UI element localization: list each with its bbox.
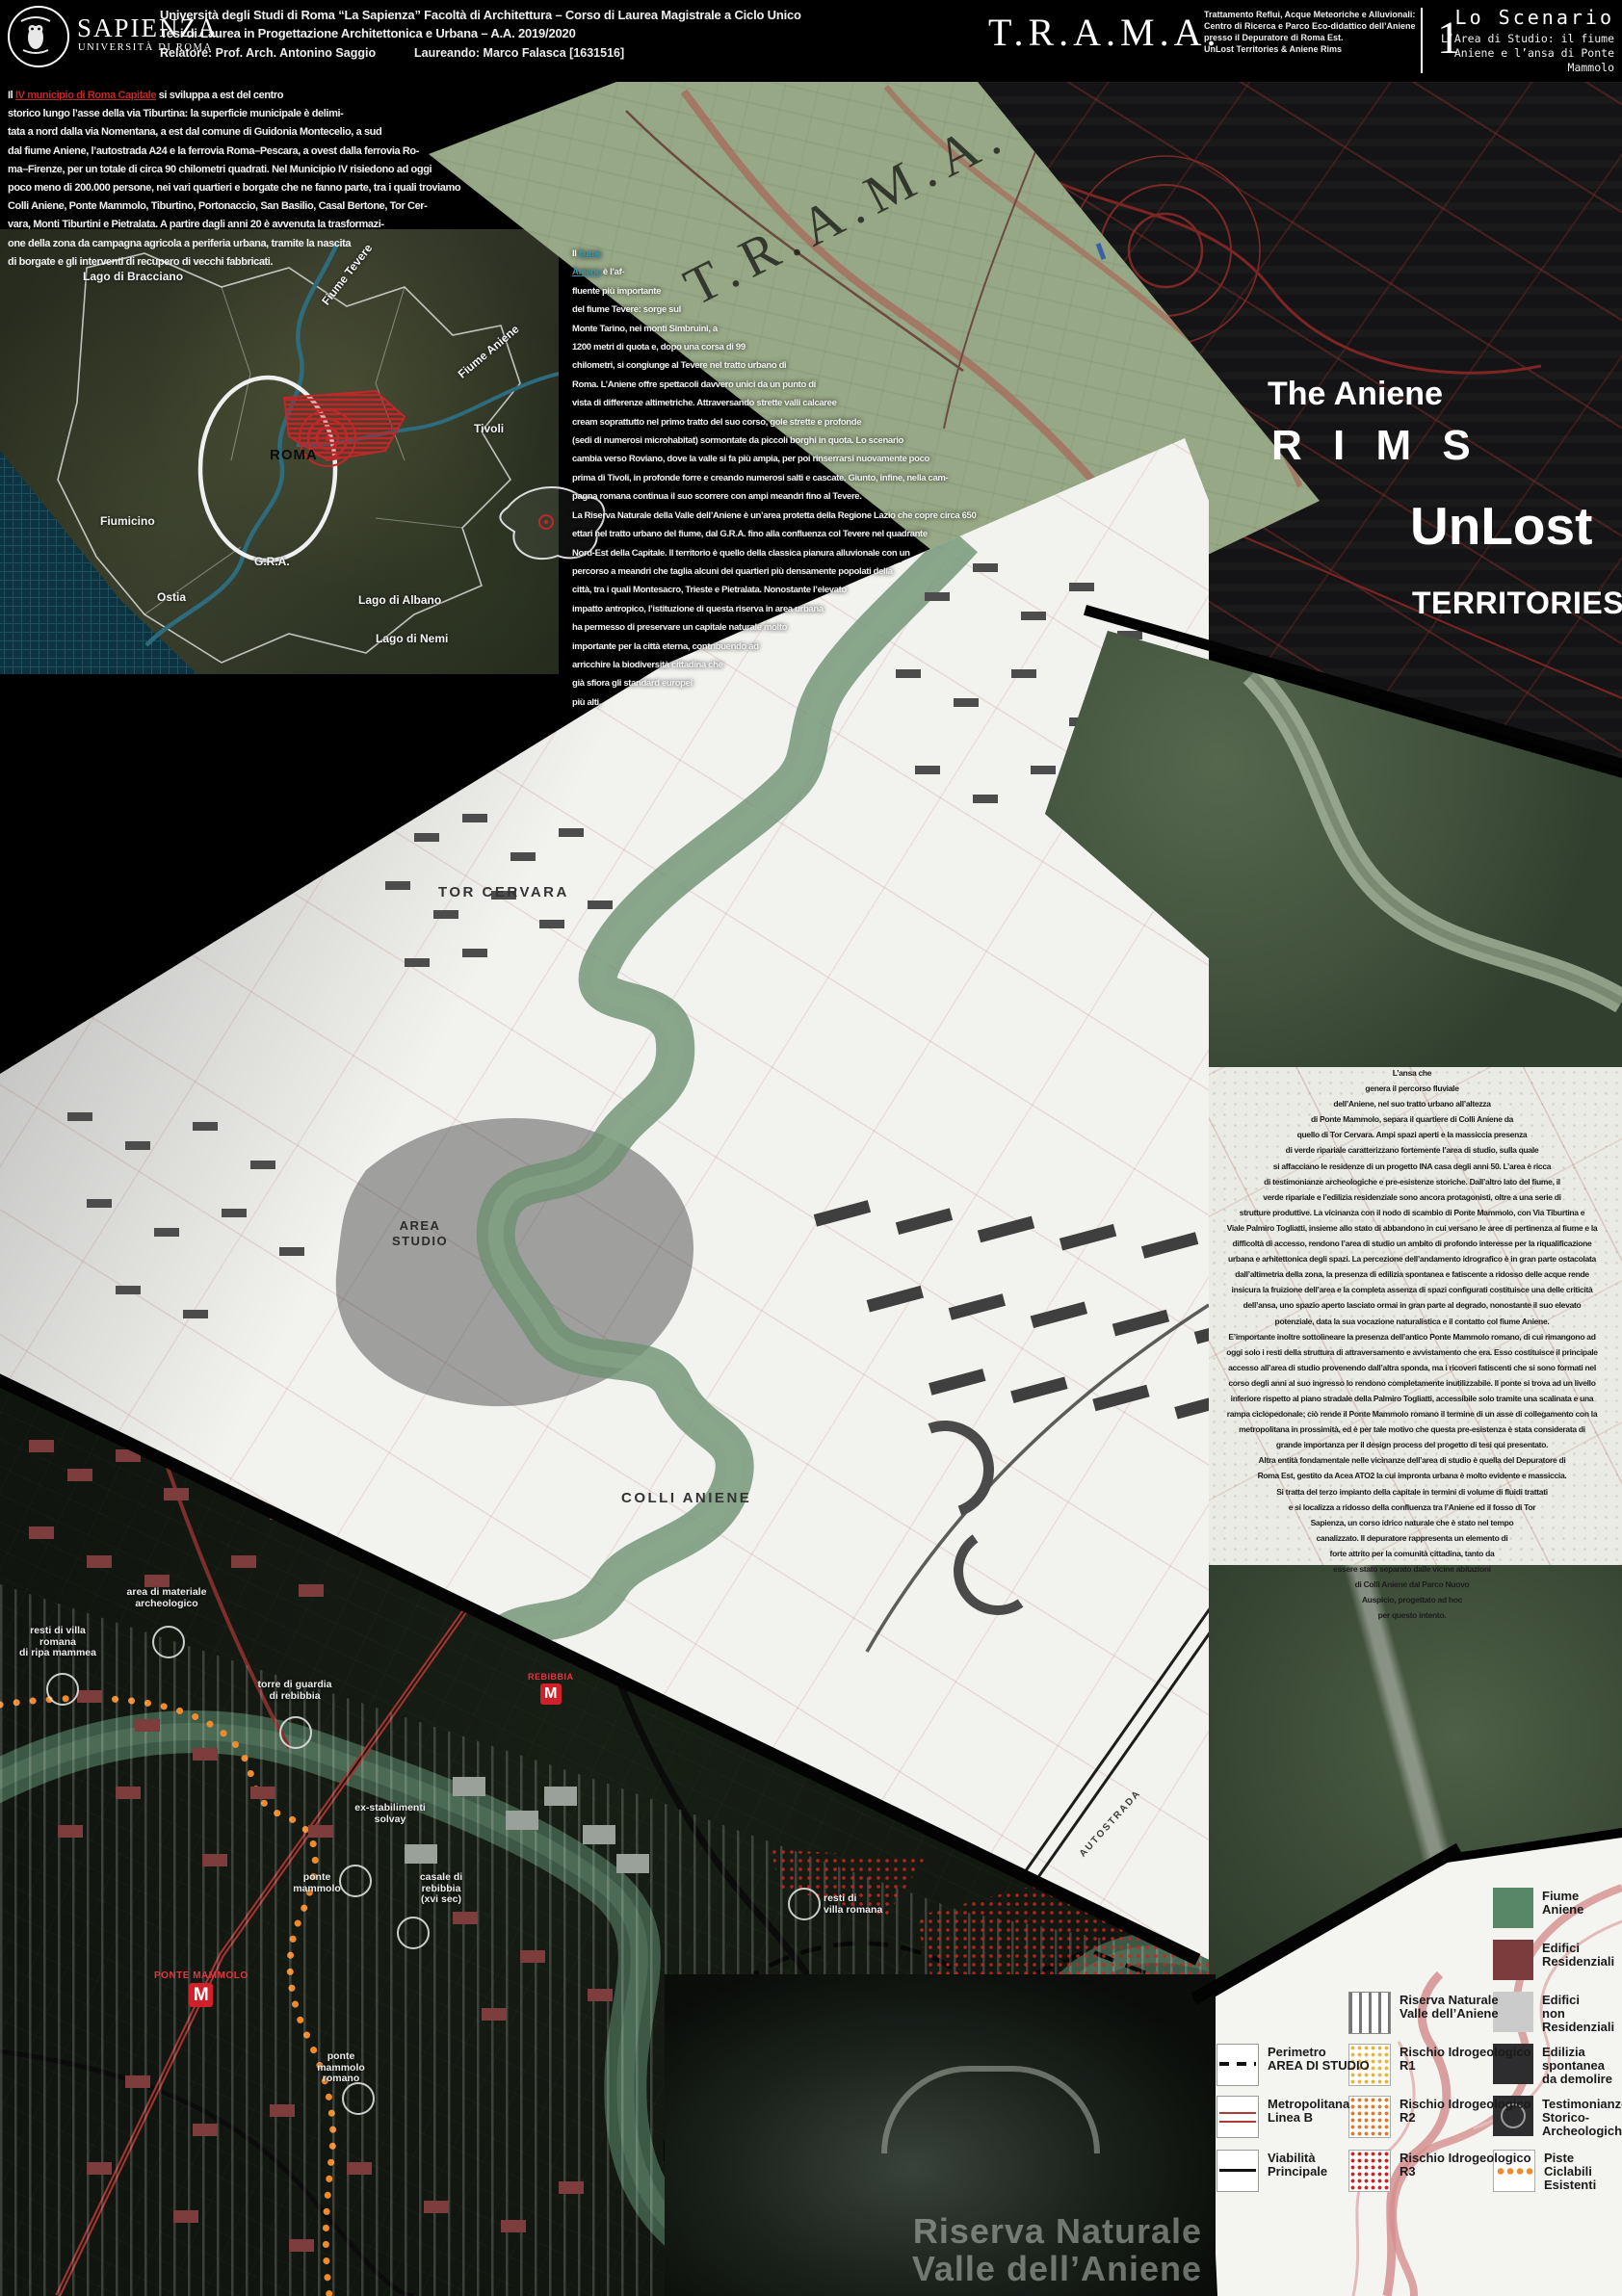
- ansa-paragraph: L’ansa che genera il percorso fluviale d…: [1202, 1065, 1622, 1623]
- metro-station-rebibbia: REBIBBIA M: [528, 1672, 574, 1705]
- scenario-subtitle: L’Area di Studio: il fiume Aniene e l’an…: [1281, 32, 1614, 75]
- poi-circle: [46, 1673, 79, 1706]
- project-acronym: T.R.A.M.A.: [988, 10, 1220, 55]
- legend-item-rischio-r3: Rischio Idrogeologico R3: [1348, 2150, 1531, 2192]
- poi-ex-solvay: ex-stabilimenti solvay: [332, 1803, 448, 1825]
- metro-station-ponte-mammolo: PONTE MAMMOLO M: [154, 1970, 249, 2007]
- label-tor-cervara: TOR CERVARA: [438, 884, 569, 900]
- legend-label: Fiume Aniene: [1542, 1888, 1583, 1928]
- label-gra: G.R.A.: [254, 555, 290, 568]
- aniene-rest: è l’af- fluente più importante del fiume…: [572, 267, 976, 707]
- legend-item-rischio-r1: Rischio Idrogeologico R1: [1348, 2044, 1531, 2086]
- title-the-aniene: The Aniene: [1268, 376, 1443, 413]
- poi-circle: [788, 1888, 821, 1920]
- photo-caption: Riserva Naturale Valle dell’Aniene: [912, 2213, 1202, 2288]
- legend-item-riserva-naturale: Riserva Naturale Valle dell’Aniene: [1348, 1992, 1499, 2034]
- poi-circle: [339, 1865, 372, 1897]
- university-line2: Tesi di Laurea in Progettazione Architet…: [160, 26, 576, 40]
- swatch-bars-icon: [1348, 1992, 1391, 2034]
- legend-item-edifici-non-residenziali: Edifici non Residenziali: [1493, 1992, 1622, 2034]
- legend-item-viabilita: Viabilità Principale: [1216, 2150, 1327, 2192]
- metro-m-icon: M: [189, 1983, 213, 2007]
- label-fiumicino: Fiumicino: [100, 514, 155, 528]
- legend-item-metropolitana: Metropolitana Linea B: [1216, 2096, 1349, 2138]
- poi-resti-ripa: resti di villa romana di ripa mammea: [6, 1626, 110, 1659]
- label-lago-bracciano: Lago di Bracciano: [83, 270, 183, 283]
- swatch-dashed-line-icon: [1216, 2044, 1259, 2086]
- label-tivoli: Tivoli: [474, 422, 504, 435]
- river-photo: Riserva Naturale Valle dell’Aniene: [665, 1974, 1216, 2296]
- swatch-road-line-icon: [1216, 2150, 1259, 2192]
- intro-paragraph: Il IV municipio di Roma Capitale si svil…: [8, 87, 460, 272]
- poi-circle: [152, 1626, 185, 1658]
- legend-label: Piste Ciclabili Esistenti: [1544, 2150, 1622, 2192]
- swatch-green-icon: [1493, 1888, 1533, 1928]
- legend-label: Perimetro AREA DI STUDIO: [1268, 2044, 1370, 2086]
- title-territories: TERRITORIES: [1412, 586, 1622, 621]
- legend-label: Edifici Residenziali: [1542, 1940, 1614, 1980]
- legend-label: Riserva Naturale Valle dell’Aniene: [1400, 1992, 1499, 2034]
- label-lago-nemi: Lago di Nemi: [376, 632, 448, 645]
- intro-highlight: IV municipio di Roma Capitale: [15, 90, 156, 101]
- legend-label: Edilizia spontanea da demolire: [1542, 2044, 1622, 2086]
- poi-torre-guardia: torre di guardia di rebibbia: [241, 1680, 349, 1702]
- poi-ponte-romano: ponte mammolo romano: [301, 2051, 381, 2085]
- label-lago-albano: Lago di Albano: [358, 593, 441, 607]
- intro-rest: si sviluppa a est del centro storico lun…: [8, 90, 460, 268]
- legend-label: Testimonianze Storico- Archeologiche: [1542, 2096, 1622, 2138]
- aniene-lead: Il: [572, 248, 579, 259]
- swatch-red-dots-icon: [1348, 2150, 1391, 2192]
- laureando-credit: Laureando: Marco Falasca [1631516]: [414, 46, 624, 60]
- legend-item-rischio-r2: Rischio Idrogeologico R2: [1348, 2096, 1531, 2138]
- poi-circle: [342, 2082, 375, 2115]
- title-unlost: UnLost: [1410, 495, 1592, 557]
- legend-item-fiume-aniene: Fiume Aniene: [1493, 1888, 1583, 1928]
- legend-label: Rischio Idrogeologico R3: [1400, 2150, 1531, 2192]
- legend-label: Metropolitana Linea B: [1268, 2096, 1349, 2138]
- intro-lead: Il: [8, 90, 15, 101]
- label-ostia: Ostia: [157, 590, 186, 604]
- poi-area-materiale: area di materiale archeologico: [104, 1587, 229, 1609]
- legend-label: Rischio Idrogeologico R2: [1400, 2096, 1531, 2138]
- sapienza-emblem-icon: [8, 6, 69, 67]
- relatore-credit: Relatore: Prof. Arch. Antonino Saggio: [160, 46, 376, 60]
- metro-m-icon: M: [540, 1683, 562, 1705]
- poi-circle: [397, 1917, 430, 1949]
- swatch-gray-icon: [1493, 1992, 1533, 2032]
- poi-casale: casale di rebibbia (xvi sec): [397, 1872, 485, 1906]
- sea-area: [0, 451, 197, 674]
- legend-item-perimetro: Perimetro AREA DI STUDIO: [1216, 2044, 1370, 2086]
- label-colli-aniene: COLLI ANIENE: [621, 1490, 751, 1506]
- swatch-orange-dots-icon: [1348, 2096, 1391, 2138]
- bridge-arch: [881, 2066, 1100, 2153]
- metro-station-name: REBIBBIA: [528, 1672, 574, 1682]
- university-line1: Università degli Studi di Roma “La Sapie…: [160, 8, 801, 22]
- label-area-studio: AREA STUDIO: [374, 1218, 466, 1250]
- metro-station-name: PONTE MAMMOLO: [154, 1970, 249, 1981]
- label-roma: ROMA: [270, 447, 318, 463]
- swatch-darkred-icon: [1493, 1940, 1533, 1980]
- legend-label: Rischio Idrogeologico R1: [1400, 2044, 1531, 2086]
- legend-label: Edifici non Residenziali: [1542, 1992, 1622, 2034]
- aniene-paragraph: Il fiume Aniene è l’af- fluente più impo…: [572, 245, 976, 712]
- poi-resti-villa: resti di villa romana: [824, 1893, 904, 1916]
- scenario-title: Lo Scenario: [1281, 6, 1614, 29]
- legend-label: Viabilità Principale: [1268, 2150, 1327, 2192]
- header-bar: SAPIENZA UNIVERSITÀ DI ROMA Università d…: [0, 0, 1622, 82]
- swatch-metro-line-icon: [1216, 2096, 1259, 2138]
- poi-circle: [279, 1716, 312, 1749]
- title-rims: R I M S: [1271, 422, 1480, 470]
- legend-item-edifici-residenziali: Edifici Residenziali: [1493, 1940, 1614, 1980]
- rome-overview-map: Lago di Bracciano Fiume Tevere Fiume Ani…: [0, 229, 559, 674]
- thesis-poster: SAPIENZA UNIVERSITÀ DI ROMA Università d…: [0, 0, 1622, 2296]
